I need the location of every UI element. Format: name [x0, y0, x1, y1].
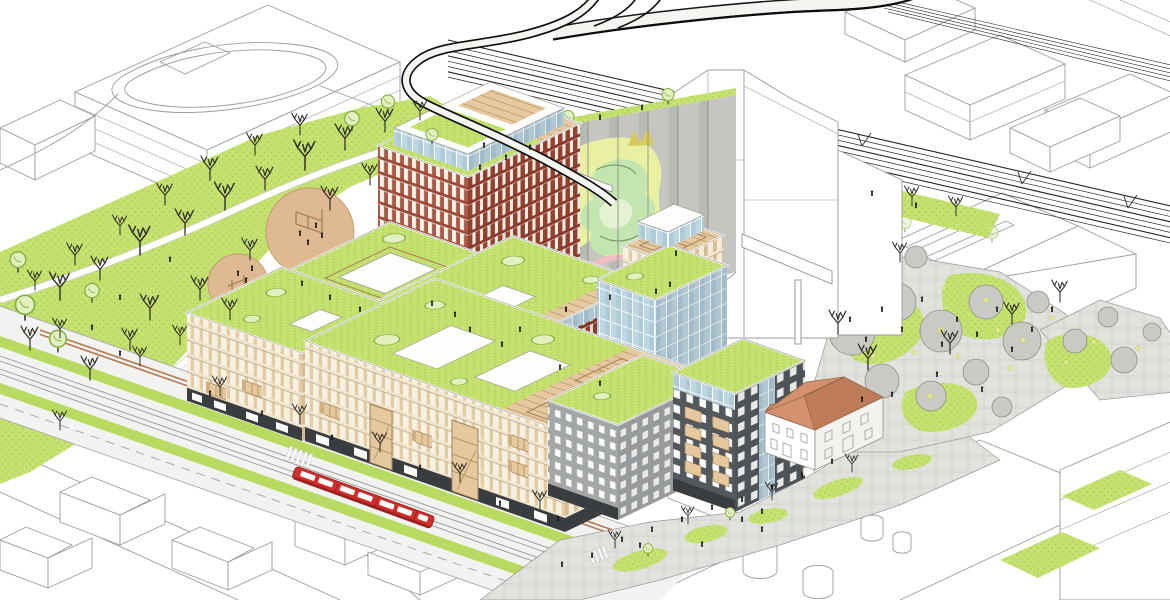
scene-canvas: Bird's-eye axonometric masterplan illust…	[0, 0, 1170, 600]
masterplan-illustration: Bird's-eye axonometric masterplan illust…	[0, 0, 1170, 600]
conveyor-column	[795, 280, 801, 344]
